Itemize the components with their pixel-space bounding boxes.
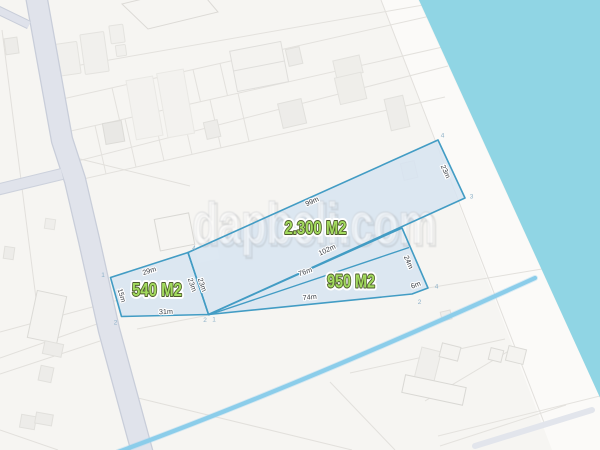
- svg-text:950 M2: 950 M2: [327, 272, 375, 292]
- svg-text:1: 1: [101, 272, 105, 279]
- svg-text:3: 3: [470, 194, 474, 201]
- svg-text:2.300 M2: 2.300 M2: [285, 218, 347, 238]
- svg-text:74m: 74m: [302, 292, 317, 302]
- svg-text:4: 4: [441, 133, 445, 140]
- svg-text:2: 2: [114, 320, 118, 327]
- svg-text:540 M2: 540 M2: [132, 280, 182, 300]
- svg-text:2: 2: [418, 299, 422, 306]
- svg-text:2: 2: [203, 317, 207, 324]
- svg-text:1: 1: [212, 317, 216, 324]
- svg-text:4: 4: [192, 245, 196, 252]
- svg-text:4: 4: [435, 284, 439, 291]
- svg-text:31m: 31m: [159, 307, 173, 316]
